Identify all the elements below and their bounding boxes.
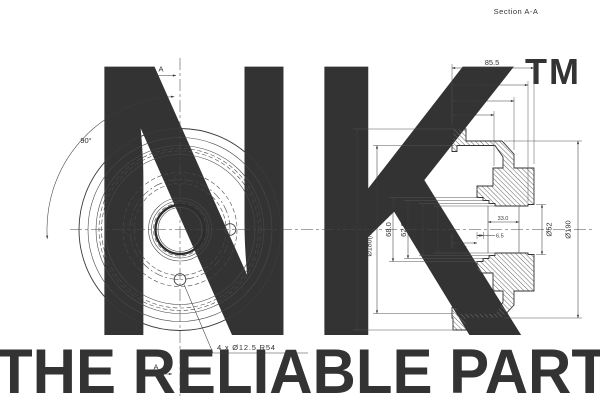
dim-label-85-5: 85.5 <box>485 58 500 67</box>
dim-label-55: 55.0 <box>414 222 423 237</box>
dim-label-216: Ø216 <box>346 220 355 238</box>
tagline-watermark: THE RELIABLE PART <box>0 337 600 400</box>
dim-label-44: 44 <box>469 105 477 114</box>
dim-label-76: 76 <box>485 75 493 84</box>
dim-label-50-2: Ø50.2 <box>431 220 438 239</box>
section-title: Section A-A <box>494 7 539 16</box>
trademark-text: TM <box>525 51 581 92</box>
drawing-page: NK TM THE RELIABLE PART Section A-A <box>0 0 600 400</box>
technical-drawing: NK TM THE RELIABLE PART Section A-A <box>0 0 600 400</box>
dim-label-180: Ø180(Max Ø181) <box>367 202 374 256</box>
cut-label-a-bottom: A <box>153 363 158 372</box>
dim-label-63: 63 <box>478 91 486 100</box>
dim-label-68: 68.0 <box>384 222 393 237</box>
dim-label-62: 62.0 <box>399 222 408 237</box>
dim-label-33: 33.0 <box>498 216 509 222</box>
cut-label-a-top: A <box>158 65 163 74</box>
dim-label-190: Ø190 <box>564 220 573 238</box>
dim-label-6-5: 6.5 <box>496 234 504 240</box>
dim-label-52: Ø52 <box>545 222 554 236</box>
angle-label: 90° <box>80 136 91 145</box>
dim-label-25-5: 25.5 <box>457 246 467 252</box>
holes-note-label: 4 x Ø12.5 R54 <box>217 343 276 352</box>
